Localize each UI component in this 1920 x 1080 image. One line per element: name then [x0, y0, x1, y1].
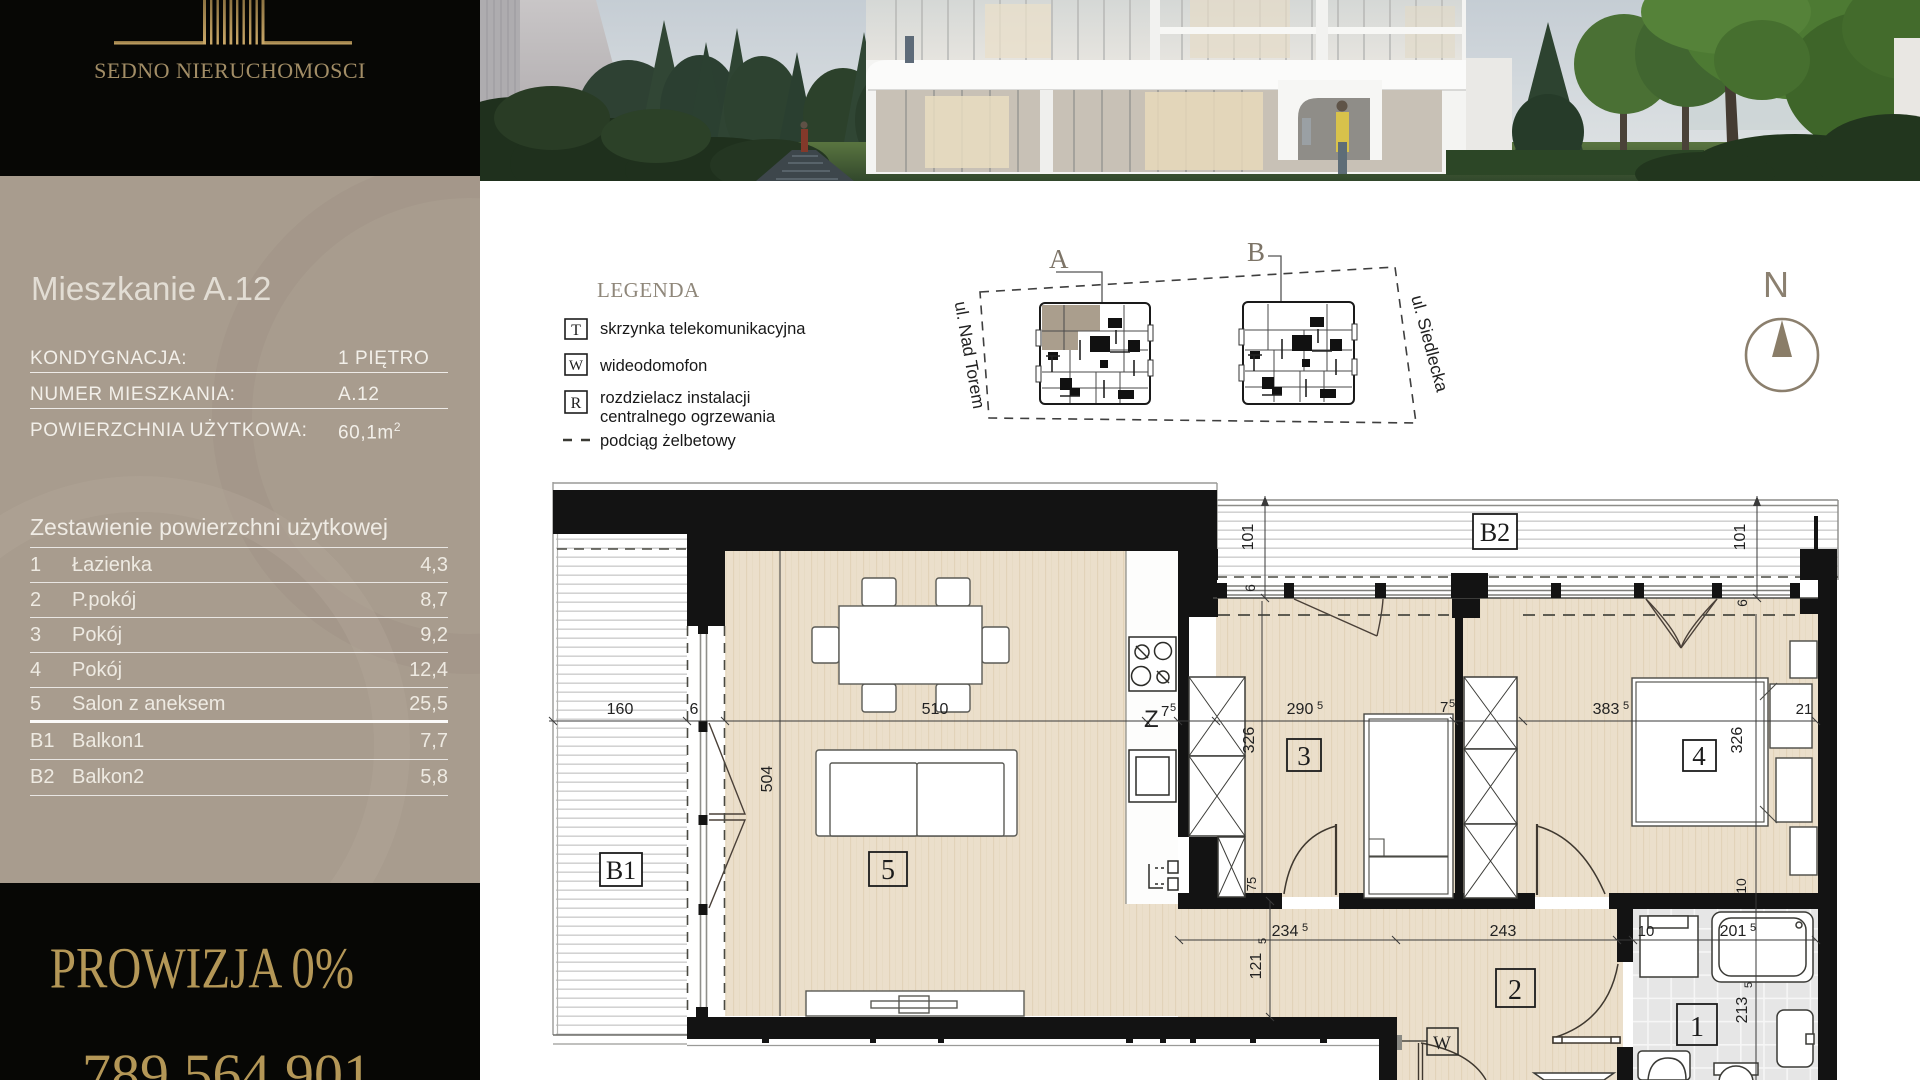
- svg-text:N: N: [1763, 264, 1789, 305]
- svg-text:W: W: [1433, 1033, 1451, 1054]
- svg-text:383: 383: [1593, 701, 1620, 718]
- svg-text:21: 21: [1796, 701, 1813, 718]
- svg-text:510: 510: [922, 701, 949, 718]
- svg-text:101: 101: [1240, 524, 1257, 551]
- svg-text:160: 160: [607, 701, 634, 718]
- svg-text:213: 213: [1734, 997, 1751, 1024]
- svg-text:10: 10: [1733, 878, 1749, 894]
- svg-text:7: 7: [1440, 699, 1448, 716]
- svg-text:75: 75: [1244, 877, 1259, 891]
- svg-text:B1: B1: [606, 856, 636, 885]
- svg-text:101: 101: [1732, 524, 1749, 551]
- svg-text:5: 5: [1623, 700, 1629, 712]
- svg-text:podciąg żelbetowy: podciąg żelbetowy: [600, 432, 737, 450]
- svg-text:326: 326: [1729, 727, 1746, 754]
- svg-text:326: 326: [1241, 727, 1258, 754]
- svg-text:B2: B2: [1480, 518, 1510, 547]
- svg-text:5: 5: [1449, 698, 1455, 710]
- svg-text:Z: Z: [1144, 706, 1159, 733]
- svg-text:centralnego ogrzewania: centralnego ogrzewania: [600, 408, 776, 426]
- svg-text:wideodomofon: wideodomofon: [599, 357, 707, 375]
- svg-text:R: R: [571, 395, 582, 412]
- svg-text:10: 10: [1638, 923, 1655, 940]
- svg-text:1: 1: [1690, 1012, 1704, 1043]
- svg-text:W: W: [569, 358, 584, 374]
- svg-text:A: A: [1049, 244, 1069, 274]
- svg-text:2: 2: [1508, 975, 1522, 1006]
- svg-text:5: 5: [1302, 922, 1308, 934]
- svg-text:6: 6: [1242, 584, 1258, 592]
- svg-text:ul. Siedlecka: ul. Siedlecka: [1407, 293, 1452, 394]
- svg-text:5: 5: [1170, 702, 1176, 714]
- svg-text:5: 5: [1257, 938, 1269, 944]
- svg-text:290: 290: [1287, 701, 1314, 718]
- svg-text:243: 243: [1490, 923, 1517, 940]
- svg-text:5: 5: [881, 855, 895, 886]
- svg-text:3: 3: [1297, 741, 1311, 771]
- svg-text:B: B: [1247, 237, 1265, 267]
- svg-text:ul. Nad Torem: ul. Nad Torem: [951, 300, 990, 410]
- svg-text:4: 4: [1692, 741, 1706, 771]
- svg-text:201: 201: [1720, 923, 1747, 940]
- svg-text:121: 121: [1248, 953, 1265, 980]
- svg-text:504: 504: [759, 766, 776, 793]
- svg-text:5: 5: [1743, 982, 1755, 988]
- svg-text:5: 5: [1750, 922, 1756, 934]
- svg-text:6: 6: [690, 701, 699, 718]
- svg-text:rozdzielacz instalacji: rozdzielacz instalacji: [600, 389, 750, 407]
- svg-text:5: 5: [1317, 700, 1323, 712]
- svg-text:LEGENDA: LEGENDA: [597, 278, 700, 302]
- svg-text:skrzynka telekomunikacyjna: skrzynka telekomunikacyjna: [600, 320, 806, 338]
- svg-text:7: 7: [1161, 703, 1169, 720]
- svg-text:T: T: [571, 322, 581, 339]
- svg-text:6: 6: [1734, 599, 1750, 607]
- svg-text:234: 234: [1272, 923, 1299, 940]
